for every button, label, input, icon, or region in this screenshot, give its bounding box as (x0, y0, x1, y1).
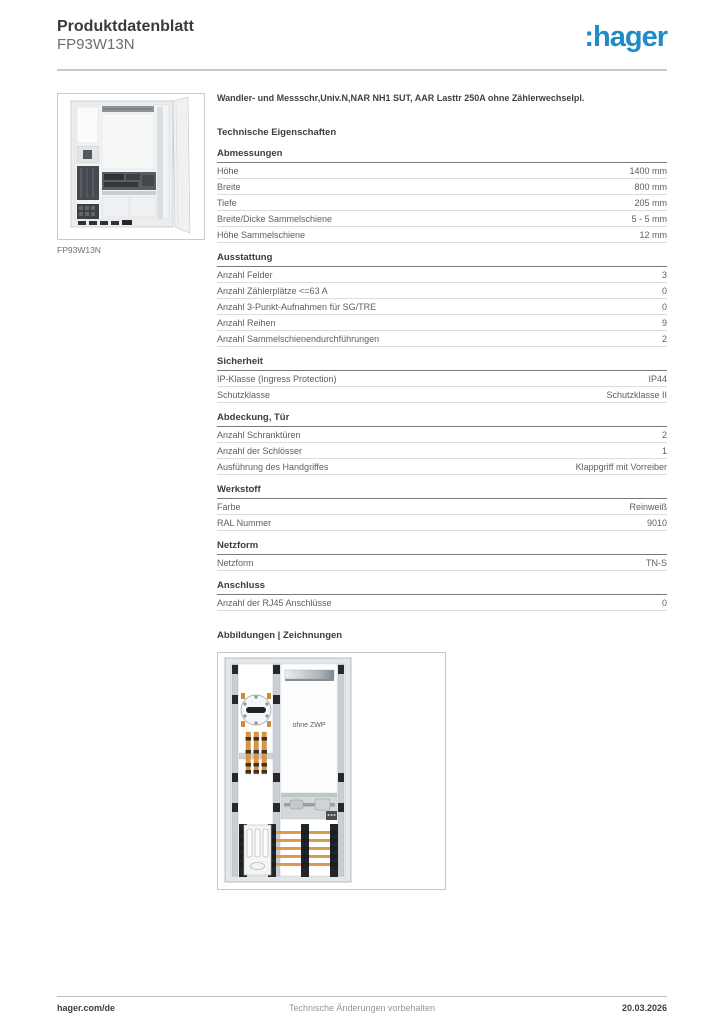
spec-row: IP-Klasse (Ingress Protection)IP44 (217, 371, 667, 387)
footer-website-link[interactable]: hager.com/de (57, 1002, 210, 1014)
spec-value: 1400 mm (629, 166, 667, 176)
spec-label: Anzahl der Schlösser (217, 446, 302, 456)
spec-label: Anzahl Sammelschienendurchführungen (217, 334, 379, 344)
spec-row: Anzahl Felder3 (217, 267, 667, 283)
drawing-label: ohne ZWP (292, 722, 325, 729)
cabinet-drawing-graphic: ohne ZWP (218, 653, 445, 889)
footer: hager.com/de Technische Änderungen vorbe… (57, 1002, 667, 1014)
spec-value: 0 (662, 286, 667, 296)
section-title: Netzform (217, 540, 667, 555)
spec-label: Anzahl 3-Punkt-Aufnahmen für SG/TRE (217, 302, 376, 312)
spec-value: 3 (662, 270, 667, 280)
spec-row: Anzahl der Schlösser1 (217, 443, 667, 459)
spec-row: Anzahl der RJ45 Anschlüsse0 (217, 595, 667, 611)
spec-label: Höhe (217, 166, 239, 176)
spec-label: Ausführung des Handgriffes (217, 462, 328, 472)
section-title: Abdeckung, Tür (217, 412, 667, 427)
spec-label: Schutzklasse (217, 390, 270, 400)
spec-value: 12 mm (639, 230, 667, 240)
spec-label: Netzform (217, 558, 254, 568)
spec-value: 205 mm (634, 198, 667, 208)
spec-value: 2 (662, 334, 667, 344)
spec-row: Breite800 mm (217, 179, 667, 195)
spec-label: Breite/Dicke Sammelschiene (217, 214, 332, 224)
spec-value: Schutzklasse II (606, 390, 667, 400)
spec-value: 0 (662, 598, 667, 608)
spec-row: Anzahl Reihen9 (217, 315, 667, 331)
section-werkstoff: Werkstoff FarbeReinweiß RAL Nummer9010 (217, 484, 667, 531)
spec-row: FarbeReinweiß (217, 499, 667, 515)
spec-label: Anzahl Felder (217, 270, 273, 280)
photo-caption: FP93W13N (57, 245, 101, 255)
spec-value: 0 (662, 302, 667, 312)
tech-properties-title: Technische Eigenschaften (217, 126, 667, 139)
section-title: Ausstattung (217, 252, 667, 267)
technical-drawing: ohne ZWP (217, 652, 446, 890)
product-datasheet-page: Produktdatenblatt FP93W13N :hager (0, 0, 724, 1024)
spec-value: TN-S (646, 558, 667, 568)
spec-row: Ausführung des HandgriffesKlappgriff mit… (217, 459, 667, 475)
drawings-title: Abbildungen | Zeichnungen (217, 629, 667, 642)
spec-value: 9010 (647, 518, 667, 528)
spec-label: Anzahl Zählerplätze <=63 A (217, 286, 328, 296)
section-title: Anschluss (217, 580, 667, 595)
doc-title: Produktdatenblatt (57, 17, 194, 36)
spec-value: 800 mm (634, 182, 667, 192)
spec-value: 9 (662, 318, 667, 328)
title-block: Produktdatenblatt FP93W13N (57, 17, 194, 54)
hager-logo: :hager (584, 22, 667, 52)
spec-label: Anzahl Schranktüren (217, 430, 301, 440)
spec-label: Anzahl der RJ45 Anschlüsse (217, 598, 332, 608)
spec-value: 2 (662, 430, 667, 440)
spec-row: Anzahl Sammelschienendurchführungen2 (217, 331, 667, 347)
spec-label: IP-Klasse (Ingress Protection) (217, 374, 337, 384)
section-title: Abmessungen (217, 148, 667, 163)
spec-value: Klappgriff mit Vorreiber (576, 462, 667, 472)
spec-row: Tiefe205 mm (217, 195, 667, 211)
footer-divider (57, 996, 667, 997)
spec-value: Reinweiß (629, 502, 667, 512)
section-netzform: Netzform NetzformTN-S (217, 540, 667, 571)
spec-label: Tiefe (217, 198, 237, 208)
spec-value: IP44 (648, 374, 667, 384)
section-title: Werkstoff (217, 484, 667, 499)
product-description: Wandler- und Messschr,Univ.N,NAR NH1 SUT… (217, 92, 667, 104)
footer-notice: Technische Änderungen vorbehalten (210, 1002, 515, 1014)
cabinet-photo-graphic (58, 94, 204, 239)
product-reference: FP93W13N (57, 36, 194, 54)
section-ausstattung: Ausstattung Anzahl Felder3 Anzahl Zähler… (217, 252, 667, 347)
spec-row: Anzahl Schranktüren2 (217, 427, 667, 443)
spec-row: Anzahl 3-Punkt-Aufnahmen für SG/TRE0 (217, 299, 667, 315)
spec-row: Höhe Sammelschiene12 mm (217, 227, 667, 243)
spec-value: 5 - 5 mm (631, 214, 667, 224)
section-anschluss: Anschluss Anzahl der RJ45 Anschlüsse0 (217, 580, 667, 611)
footer-date: 20.03.2026 (515, 1002, 668, 1014)
section-abdeckung-tuer: Abdeckung, Tür Anzahl Schranktüren2 Anza… (217, 412, 667, 475)
spec-label: RAL Nummer (217, 518, 271, 528)
spec-row: Breite/Dicke Sammelschiene5 - 5 mm (217, 211, 667, 227)
spec-label: Breite (217, 182, 241, 192)
spec-label: Anzahl Reihen (217, 318, 276, 328)
spec-row: RAL Nummer9010 (217, 515, 667, 531)
section-title: Sicherheit (217, 356, 667, 371)
main-content: Wandler- und Messschr,Univ.N,NAR NH1 SUT… (217, 92, 667, 890)
header-divider (57, 69, 667, 71)
spec-row: SchutzklasseSchutzklasse II (217, 387, 667, 403)
product-photo (57, 93, 205, 240)
spec-label: Höhe Sammelschiene (217, 230, 305, 240)
section-abmessungen: Abmessungen Höhe1400 mm Breite800 mm Tie… (217, 148, 667, 243)
spec-row: Höhe1400 mm (217, 163, 667, 179)
spec-label: Farbe (217, 502, 241, 512)
spec-value: 1 (662, 446, 667, 456)
spec-row: Anzahl Zählerplätze <=63 A0 (217, 283, 667, 299)
spec-row: NetzformTN-S (217, 555, 667, 571)
section-sicherheit: Sicherheit IP-Klasse (Ingress Protection… (217, 356, 667, 403)
